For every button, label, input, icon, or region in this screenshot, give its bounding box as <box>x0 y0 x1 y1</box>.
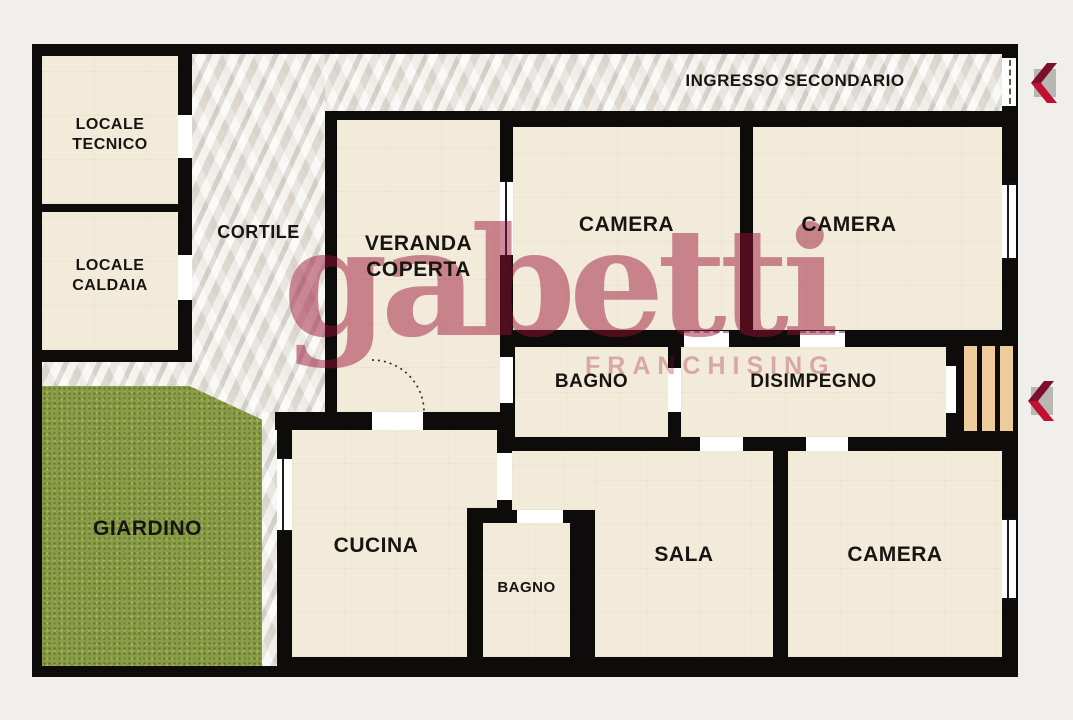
secondary-entrance-arrow-icon <box>1027 61 1059 105</box>
label-bagno-centrale: BAGNO <box>515 370 668 394</box>
window-veranda-camera <box>500 180 513 257</box>
door-bagno-centrale <box>668 368 681 412</box>
window-cucina <box>277 457 292 532</box>
label-locale-tecnico: LOCALE TECNICO <box>42 115 178 155</box>
door-bagno-sud <box>517 510 563 523</box>
door-veranda-bagno <box>500 357 513 403</box>
door-main-entrance <box>946 366 956 413</box>
stair-step <box>1000 346 1013 431</box>
window-camera-nord-est <box>1002 183 1016 260</box>
room-cucina <box>292 430 497 508</box>
floorplan-canvas: gabetti FRANCHISING LOCALE TECNICO LOCAL… <box>0 0 1073 720</box>
door-sala <box>700 437 743 451</box>
label-giardino: GIARDINO <box>45 516 250 542</box>
door-cucina-anteroom <box>497 453 512 500</box>
label-camera-nord-est: CAMERA <box>758 212 940 238</box>
label-camera-sud: CAMERA <box>788 542 1002 568</box>
label-locale-caldaia: LOCALE CALDAIA <box>42 256 178 296</box>
door-secondary-entrance-exit <box>1002 58 1016 106</box>
door-locale-tecnico <box>178 115 192 158</box>
stair-step <box>964 346 977 431</box>
window-camera-sud <box>1002 518 1016 600</box>
main-entrance-arrow-icon <box>1024 379 1056 423</box>
door-camera-sud <box>806 437 848 451</box>
label-camera-nord-ovest: CAMERA <box>513 212 740 238</box>
label-disimpegno: DISIMPEGNO <box>681 370 946 394</box>
label-bagno-sud: BAGNO <box>483 579 570 598</box>
label-cucina: CUCINA <box>292 533 460 559</box>
label-sala: SALA <box>595 542 773 568</box>
door-veranda-cucina <box>372 412 423 430</box>
stair-step <box>982 346 995 431</box>
room-cucina-lower <box>292 508 467 657</box>
room-anteroom <box>512 451 595 510</box>
label-veranda-coperta: VERANDA COPERTA <box>337 231 500 284</box>
door-camera-nord-ovest <box>684 331 729 347</box>
label-cortile: CORTILE <box>192 221 325 244</box>
door-locale-caldaia <box>178 255 192 300</box>
label-ingresso-secondario: INGRESSO SECONDARIO <box>600 70 990 91</box>
door-camera-nord-est <box>800 331 845 347</box>
